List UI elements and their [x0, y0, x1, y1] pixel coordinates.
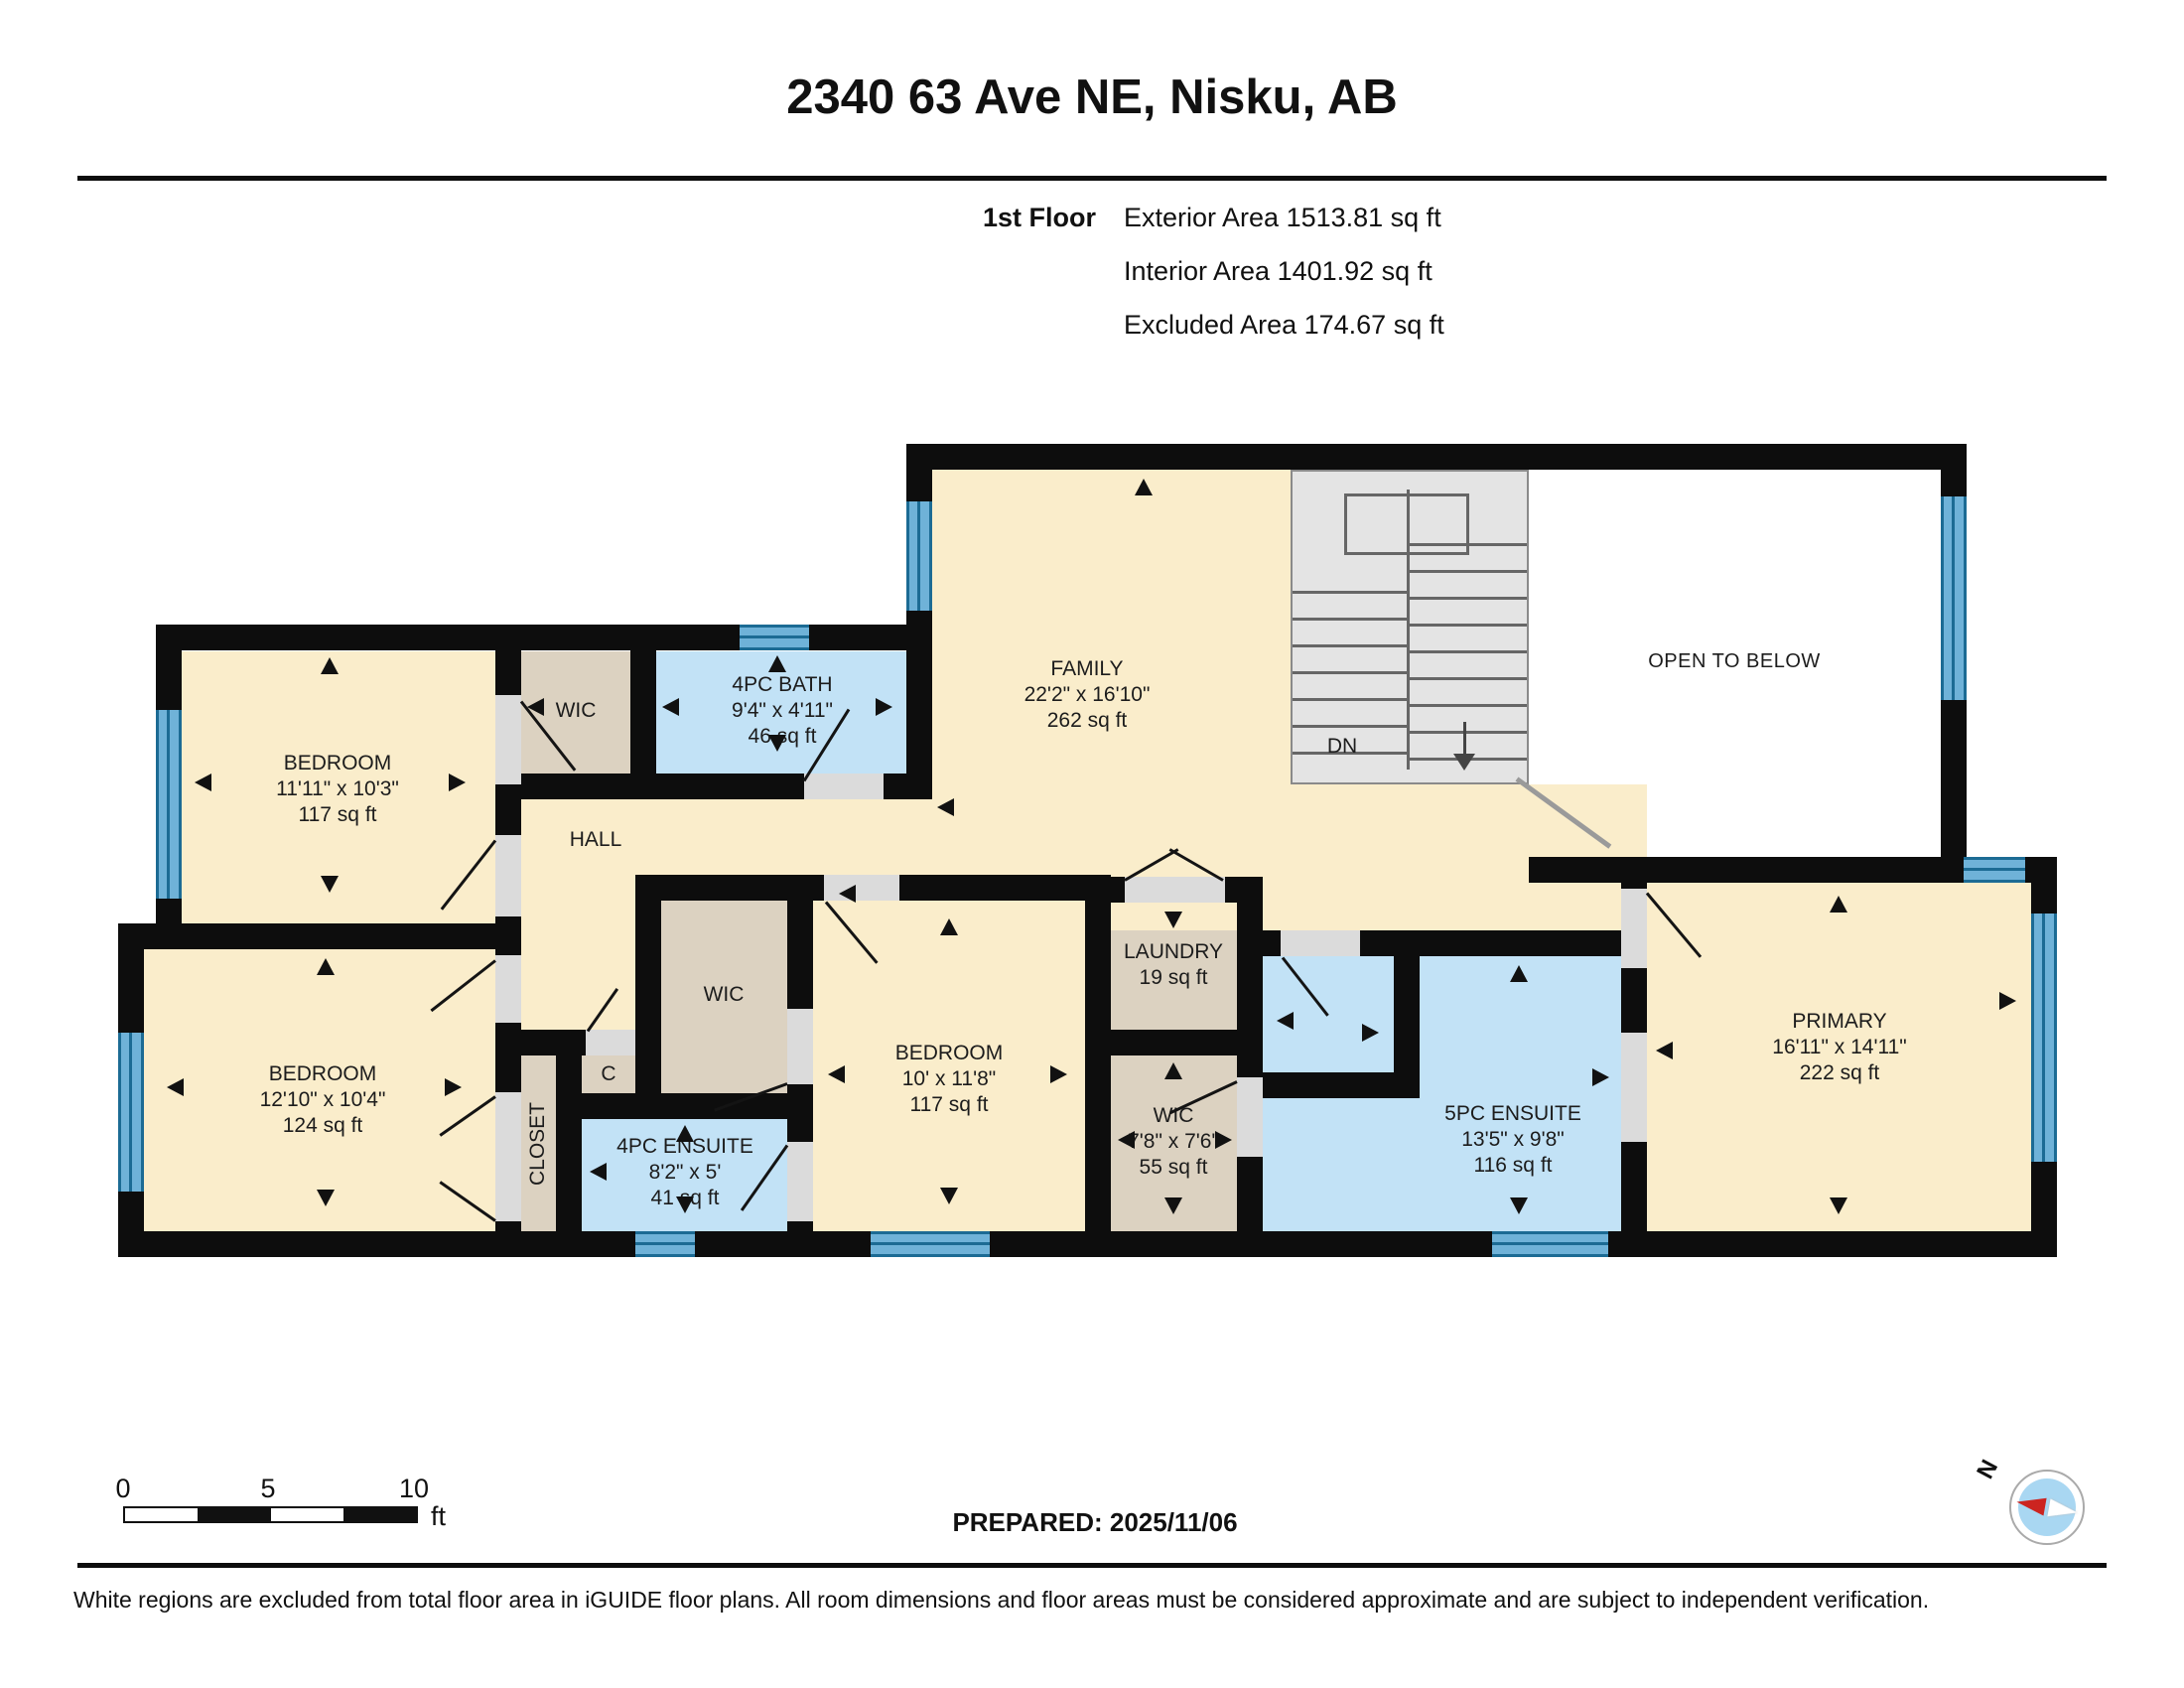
room-label-laundry: LAUNDRY19 sq ft — [1124, 939, 1223, 991]
dimension-arrow — [590, 1163, 607, 1181]
dimension-arrow — [1118, 1131, 1135, 1149]
dimension-arrow — [321, 876, 339, 893]
compass-needles — [2005, 1466, 2088, 1548]
dimension-arrow — [940, 918, 958, 935]
dimension-arrow — [1999, 992, 2016, 1010]
stair-treads-right — [1410, 519, 1527, 770]
window — [118, 1033, 144, 1192]
window — [156, 710, 182, 899]
wall — [906, 444, 932, 799]
wall — [156, 625, 932, 650]
door-opening — [495, 835, 521, 916]
dimension-arrow — [317, 1190, 335, 1206]
room-label-bedroom-middle: BEDROOM10' x 11'8"117 sq ft — [895, 1041, 1004, 1118]
dimension-arrow — [676, 1125, 694, 1142]
wall — [1237, 1072, 1420, 1098]
stair-down-arrow — [1463, 722, 1466, 756]
door-opening — [1621, 1033, 1647, 1142]
dimension-arrow — [1656, 1042, 1673, 1059]
wall — [635, 875, 661, 1119]
dimension-arrow — [1050, 1065, 1067, 1083]
dimension-arrow — [768, 735, 786, 752]
door-opening — [1237, 1077, 1263, 1157]
room-label-wic-top: WIC — [556, 698, 597, 724]
dimension-arrow — [1164, 1062, 1182, 1079]
dimension-arrow — [937, 798, 954, 816]
dimension-arrow — [1510, 1197, 1528, 1214]
room-label-open-to-below: OPEN TO BELOW — [1648, 648, 1821, 674]
dimension-arrow — [1830, 1197, 1847, 1214]
room-label-ensuite-5pc: 5PC ENSUITE13'5" x 9'8"116 sq ft — [1444, 1101, 1581, 1179]
door-opening — [495, 1092, 521, 1221]
stair-down-arrowhead — [1453, 754, 1475, 771]
room-ensuite-5pc — [1420, 956, 1621, 1231]
window — [906, 501, 932, 611]
room-label-primary: PRIMARY16'11" x 14'11"222 sq ft — [1772, 1009, 1906, 1086]
dimension-arrow — [828, 1065, 845, 1083]
dimension-arrow — [662, 698, 679, 716]
dimension-arrow — [445, 1078, 462, 1096]
door-opening — [804, 774, 884, 799]
door-opening — [586, 1030, 635, 1055]
room-label-bedroom-bottom-left: BEDROOM12'10" x 10'4"124 sq ft — [260, 1061, 386, 1139]
dimension-arrow — [1164, 912, 1182, 928]
compass-needle-south — [2047, 1498, 2079, 1521]
room-label-bedroom-top-left: BEDROOM11'11" x 10'3"117 sq ft — [276, 751, 399, 828]
wall — [556, 1093, 813, 1119]
door-opening — [1621, 889, 1647, 968]
window — [2031, 914, 2057, 1162]
floorplan-page: 2340 63 Ave NE, Nisku, AB 1st Floor Exte… — [0, 0, 2184, 1688]
floor-plan: BEDROOM11'11" x 10'3"117 sq ft WIC 4PC B… — [0, 0, 2184, 1688]
window — [740, 625, 809, 650]
dimension-arrow — [195, 774, 211, 791]
dimension-arrow — [527, 698, 544, 716]
dimension-arrow — [321, 657, 339, 674]
scale-unit: ft — [431, 1501, 446, 1532]
wall — [556, 1030, 582, 1257]
dimension-arrow — [1277, 1012, 1294, 1030]
room-label-closet-c: C — [601, 1061, 615, 1087]
dimension-arrow — [1830, 896, 1847, 913]
wall — [1111, 877, 1125, 903]
dimension-arrow — [1135, 479, 1153, 495]
wall — [1085, 875, 1111, 1257]
dimension-arrow — [1215, 1131, 1232, 1149]
room-label-family: FAMILY22'2" x 16'10"262 sq ft — [1024, 656, 1151, 734]
scale-bar-segment — [271, 1508, 343, 1521]
dimension-arrow — [676, 1196, 694, 1213]
room-label-hall: HALL — [570, 827, 622, 853]
door-opening — [495, 955, 521, 1023]
scale-bar-segment — [343, 1508, 416, 1521]
disclaimer-text: White regions are excluded from total fl… — [73, 1587, 1929, 1614]
scale-tick-0: 0 — [115, 1474, 130, 1504]
window — [635, 1231, 695, 1257]
room-hall — [521, 875, 635, 1030]
dimension-arrow — [876, 698, 892, 716]
room-label-wic-right: WIC7'8" x 7'6"55 sq ft — [1128, 1103, 1219, 1181]
dimension-arrow — [1164, 1197, 1182, 1214]
room-label-wic-middle: WIC — [704, 982, 745, 1008]
dimension-arrow — [317, 958, 335, 975]
room-label-closet: CLOSET — [525, 1102, 551, 1186]
compass-needle-north — [2015, 1493, 2047, 1516]
scale-tick-10: 10 — [399, 1474, 429, 1504]
window — [1492, 1231, 1608, 1257]
window — [1941, 496, 1967, 700]
dimension-arrow — [449, 774, 466, 791]
wall — [1394, 930, 1647, 956]
door-opening — [1281, 930, 1360, 956]
door-opening — [495, 695, 521, 784]
dimension-arrow — [839, 885, 856, 903]
dimension-arrow — [1510, 965, 1528, 982]
door-opening — [1125, 877, 1225, 903]
dimension-arrow — [940, 1188, 958, 1204]
wall — [906, 444, 1967, 470]
scale-bar-segment — [198, 1508, 270, 1521]
scale-tick-5: 5 — [260, 1474, 275, 1504]
room-ensuite-5pc — [1263, 1098, 1420, 1231]
footer-divider — [77, 1563, 2107, 1568]
prepared-date: PREPARED: 2025/11/06 — [952, 1507, 1237, 1538]
door-opening — [787, 1009, 813, 1084]
door-opening — [824, 875, 899, 901]
compass-icon — [2009, 1470, 2085, 1545]
window — [1964, 857, 2025, 883]
dimension-arrow — [1362, 1024, 1379, 1042]
wall — [1223, 877, 1237, 903]
door-opening — [787, 1142, 813, 1221]
scale-bar-segment — [125, 1508, 198, 1521]
dimension-arrow — [167, 1078, 184, 1096]
dimension-arrow — [1592, 1068, 1609, 1086]
window — [871, 1231, 990, 1257]
stairs-dn-label: DN — [1327, 734, 1357, 760]
wall — [118, 923, 521, 949]
dimension-arrow — [768, 655, 786, 672]
scale-bar — [123, 1506, 418, 1523]
